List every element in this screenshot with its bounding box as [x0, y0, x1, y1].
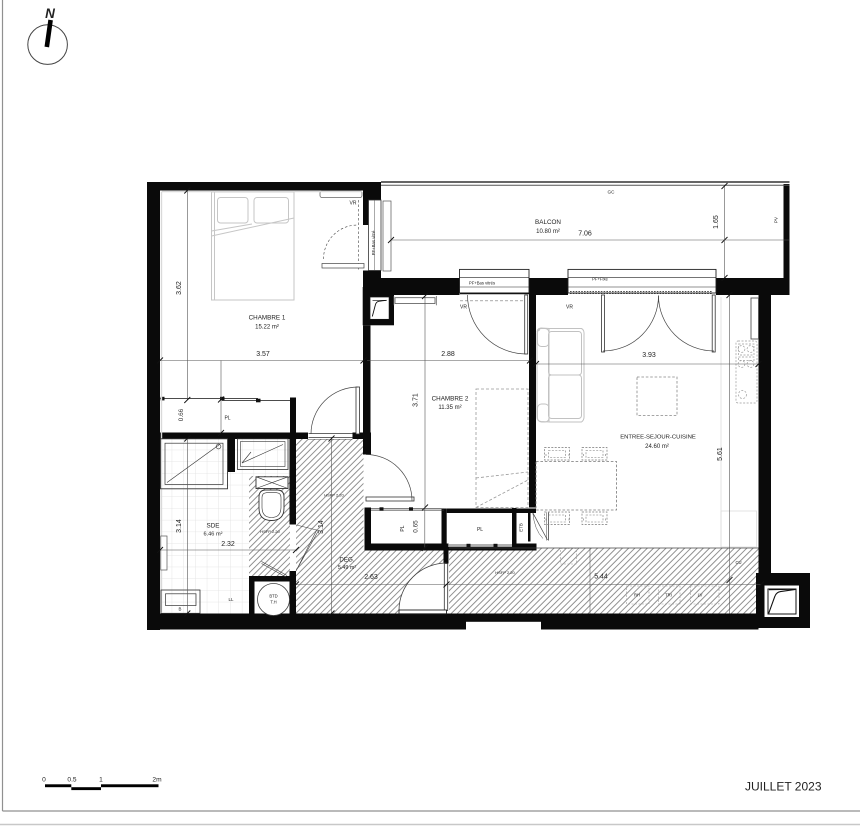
svg-text:3.71: 3.71 — [413, 393, 420, 407]
svg-text:VR: VR — [566, 305, 573, 311]
svg-text:VR: VR — [350, 201, 357, 207]
svg-text:BALCON: BALCON — [535, 219, 561, 226]
svg-text:HSFP 2.20: HSFP 2.20 — [324, 493, 344, 498]
svg-text:6.46 m²: 6.46 m² — [204, 532, 223, 538]
svg-text:3.57: 3.57 — [256, 351, 270, 358]
svg-text:HSFP 2.20: HSFP 2.20 — [260, 529, 280, 534]
svg-text:5.61: 5.61 — [717, 447, 724, 461]
svg-text:PF+Bas vitré: PF+Bas vitré — [371, 230, 376, 255]
svg-text:3.93: 3.93 — [642, 352, 656, 359]
svg-text:3.14: 3.14 — [318, 520, 325, 534]
svg-text:0.5: 0.5 — [67, 777, 76, 784]
svg-text:ETB: ETB — [519, 523, 524, 532]
svg-text:5.44: 5.44 — [594, 574, 608, 581]
svg-text:2.63: 2.63 — [364, 574, 378, 581]
svg-text:JUILLET 2023: JUILLET 2023 — [745, 780, 822, 794]
svg-text:RH: RH — [634, 593, 640, 598]
svg-text:PF+Fixe: PF+Fixe — [592, 277, 608, 282]
svg-text:CHAMBRE 2: CHAMBRE 2 — [432, 396, 469, 403]
svg-text:PV: PV — [774, 216, 779, 223]
svg-text:24.60 m²: 24.60 m² — [645, 444, 669, 450]
svg-text:GC: GC — [608, 190, 616, 195]
svg-text:LL: LL — [229, 597, 234, 602]
svg-text:3.62: 3.62 — [176, 281, 183, 295]
svg-text:B: B — [179, 607, 182, 612]
svg-text:N: N — [45, 6, 55, 21]
svg-text:15.22 m²: 15.22 m² — [255, 325, 279, 331]
svg-text:2.88: 2.88 — [441, 351, 455, 358]
svg-text:PL: PL — [400, 525, 406, 531]
svg-text:HSFP 2.20: HSFP 2.20 — [495, 570, 515, 575]
svg-text:11.35 m²: 11.35 m² — [438, 405, 461, 411]
svg-text:PF+Bas vitrés: PF+Bas vitrés — [469, 281, 495, 286]
svg-text:VR: VR — [460, 305, 467, 311]
svg-text:1.65: 1.65 — [713, 215, 720, 229]
svg-text:0.65: 0.65 — [413, 520, 420, 533]
svg-text:5.49 m²: 5.49 m² — [338, 565, 356, 571]
svg-text:BTD: BTD — [269, 594, 277, 599]
svg-text:0: 0 — [42, 777, 46, 784]
svg-text:0.66: 0.66 — [178, 408, 185, 421]
svg-text:PL: PL — [477, 527, 483, 533]
svg-text:7.06: 7.06 — [578, 231, 592, 238]
svg-text:T.H: T.H — [270, 600, 276, 605]
svg-text:DEG.: DEG. — [339, 557, 354, 564]
svg-text:1: 1 — [99, 777, 103, 784]
svg-text:CU: CU — [735, 560, 741, 565]
svg-text:2.32: 2.32 — [221, 541, 235, 548]
svg-text:10.80 m²: 10.80 m² — [536, 229, 560, 235]
svg-text:SDE: SDE — [207, 523, 220, 530]
svg-text:CHAMBRE 1: CHAMBRE 1 — [249, 315, 286, 322]
svg-text:3.14: 3.14 — [176, 519, 183, 533]
svg-text:2m: 2m — [152, 777, 162, 784]
svg-text:PL: PL — [224, 416, 230, 422]
svg-text:ENTREE-SEJOUR-CUISINE: ENTREE-SEJOUR-CUISINE — [620, 435, 696, 441]
svg-text:TRI: TRI — [665, 593, 672, 598]
svg-text:LV: LV — [698, 593, 703, 598]
